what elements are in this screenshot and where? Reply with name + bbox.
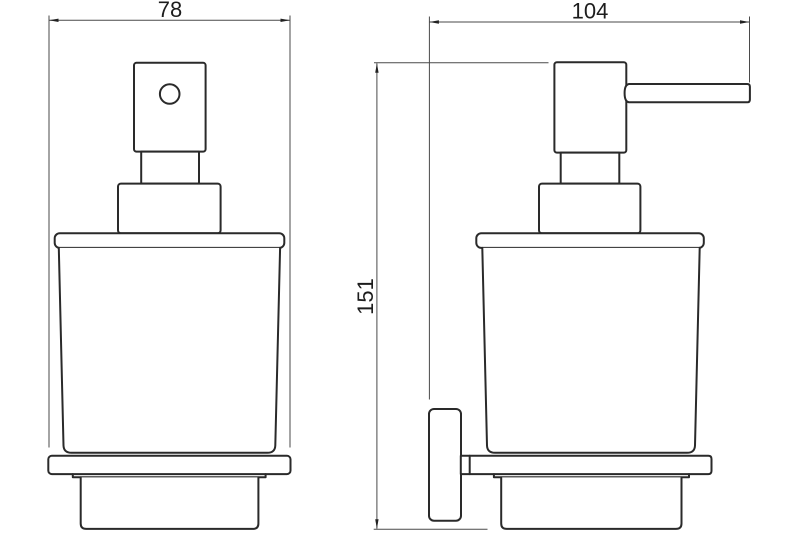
svg-text:151: 151 xyxy=(353,278,378,315)
svg-text:78: 78 xyxy=(158,0,182,22)
svg-text:104: 104 xyxy=(572,0,609,24)
